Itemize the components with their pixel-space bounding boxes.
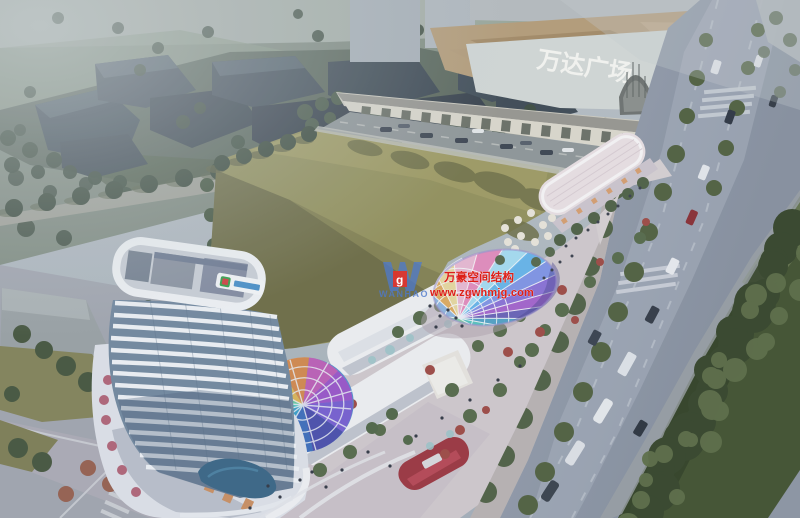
svg-text:WANHAO: WANHAO — [379, 289, 429, 299]
svg-text:万豪空间结构: 万豪空间结构 — [443, 270, 514, 284]
svg-text:g: g — [396, 273, 403, 287]
svg-text:www.zgwhmjg.com: www.zgwhmjg.com — [429, 287, 534, 299]
